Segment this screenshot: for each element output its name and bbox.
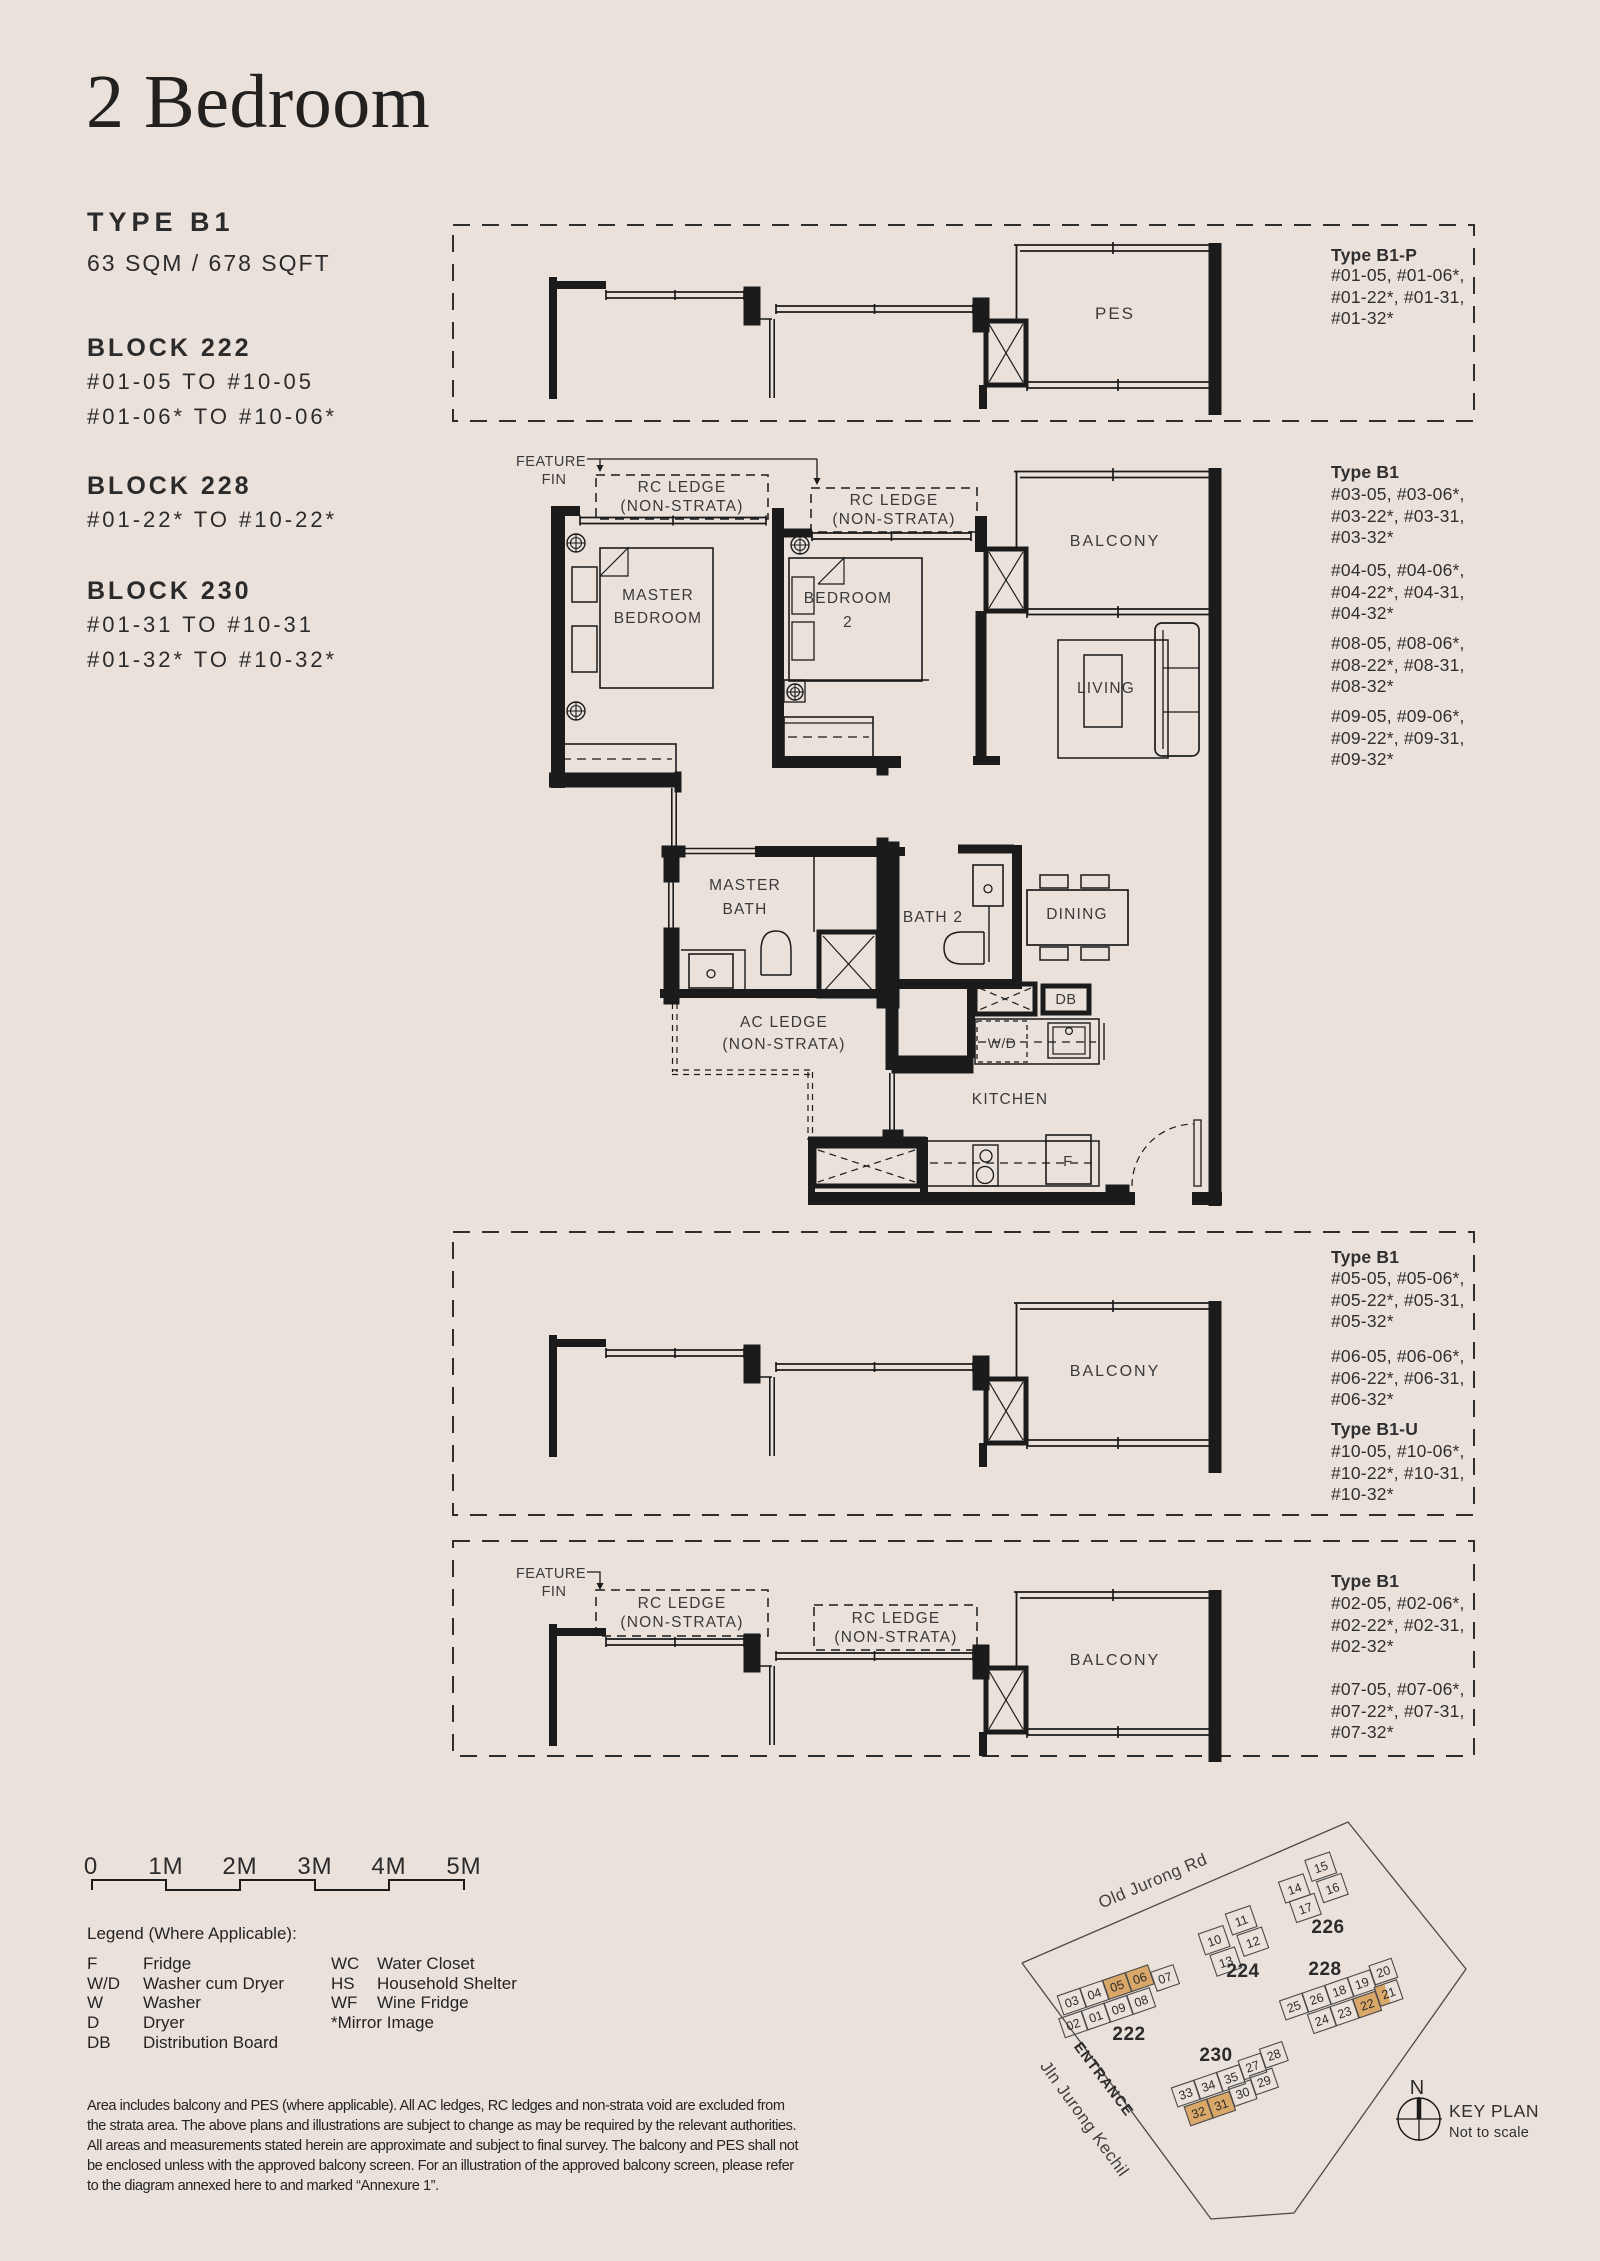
svg-text:BEDROOM: BEDROOM (804, 590, 893, 607)
svg-text:11: 11 (1233, 1912, 1250, 1929)
svg-text:(NON-STRATA): (NON-STRATA) (620, 1614, 743, 1631)
svg-text:228: 228 (1308, 1959, 1341, 1980)
svg-text:MASTER: MASTER (709, 877, 781, 894)
svg-text:19: 19 (1353, 1975, 1371, 1993)
svg-text:15: 15 (1312, 1859, 1330, 1877)
svg-text:08: 08 (1133, 1992, 1151, 2010)
svg-text:BATH 2: BATH 2 (903, 909, 963, 926)
svg-text:AC LEDGE: AC LEDGE (740, 1014, 828, 1031)
svg-text:W/D: W/D (988, 1035, 1017, 1051)
svg-text:1M: 1M (148, 1853, 183, 1880)
svg-text:21: 21 (1380, 1985, 1398, 2003)
svg-text:25: 25 (1285, 1998, 1303, 2016)
svg-text:3M: 3M (297, 1853, 332, 1880)
svg-text:BALCONY: BALCONY (1070, 1363, 1160, 1380)
svg-text:RC LEDGE: RC LEDGE (638, 1595, 727, 1612)
svg-text:20: 20 (1375, 1963, 1393, 1981)
svg-text:(NON-STRATA): (NON-STRATA) (834, 1629, 957, 1646)
svg-text:FIN: FIN (542, 472, 567, 488)
svg-text:RC LEDGE: RC LEDGE (638, 479, 727, 496)
svg-text:29: 29 (1255, 2073, 1273, 2091)
svg-text:09: 09 (1110, 2000, 1128, 2018)
svg-text:23: 23 (1336, 2004, 1354, 2022)
svg-text:03: 03 (1063, 1993, 1081, 2011)
svg-text:DB: DB (1055, 992, 1076, 1008)
svg-text:Old Jurong Rd: Old Jurong Rd (1096, 1850, 1210, 1913)
svg-text:N: N (1410, 2077, 1424, 2099)
svg-text:12: 12 (1244, 1934, 1262, 1952)
svg-text:17: 17 (1297, 1900, 1315, 1918)
svg-text:(NON-STRATA): (NON-STRATA) (722, 1036, 845, 1053)
svg-text:230: 230 (1199, 2045, 1232, 2066)
svg-text:07: 07 (1156, 1969, 1174, 1987)
svg-text:10: 10 (1206, 1932, 1224, 1950)
svg-text:LIVING: LIVING (1077, 680, 1135, 697)
svg-text:KEY PLAN: KEY PLAN (1449, 2101, 1539, 2121)
svg-text:224: 224 (1226, 1961, 1259, 1982)
svg-text:FIN: FIN (542, 1584, 567, 1600)
svg-text:DINING: DINING (1046, 906, 1107, 923)
svg-text:FEATURE: FEATURE (516, 1566, 586, 1582)
svg-text:5M: 5M (446, 1853, 481, 1880)
svg-text:RC LEDGE: RC LEDGE (852, 1610, 941, 1627)
svg-text:28: 28 (1265, 2046, 1283, 2064)
svg-text:4M: 4M (371, 1853, 406, 1880)
svg-text:BALCONY: BALCONY (1070, 533, 1160, 550)
svg-text:BEDROOM: BEDROOM (614, 610, 703, 627)
svg-text:30: 30 (1234, 2085, 1252, 2103)
svg-text:Not to scale: Not to scale (1449, 2125, 1529, 2141)
svg-text:24: 24 (1313, 2012, 1331, 2030)
svg-text:02: 02 (1064, 2016, 1082, 2034)
svg-text:(NON-STRATA): (NON-STRATA) (832, 511, 955, 528)
svg-text:222: 222 (1112, 2024, 1145, 2045)
svg-text:04: 04 (1086, 1985, 1104, 2003)
svg-text:2M: 2M (222, 1853, 257, 1880)
svg-text:26: 26 (1308, 1990, 1326, 2008)
svg-text:226: 226 (1311, 1917, 1344, 1938)
svg-text:BALCONY: BALCONY (1070, 1652, 1160, 1669)
svg-text:(NON-STRATA): (NON-STRATA) (620, 498, 743, 515)
svg-text:18: 18 (1331, 1982, 1349, 2000)
svg-text:MASTER: MASTER (622, 587, 694, 604)
svg-text:14: 14 (1286, 1880, 1304, 1898)
svg-text:KITCHEN: KITCHEN (972, 1091, 1048, 1108)
svg-text:01: 01 (1087, 2008, 1105, 2026)
svg-text:0: 0 (84, 1853, 98, 1880)
svg-text:16: 16 (1324, 1880, 1342, 1898)
svg-text:Jln Jurong Kechil: Jln Jurong Kechil (1036, 2057, 1132, 2180)
svg-text:2: 2 (843, 614, 853, 631)
svg-text:BATH: BATH (723, 901, 768, 918)
svg-text:F: F (1063, 1153, 1073, 1170)
svg-text:RC LEDGE: RC LEDGE (850, 492, 939, 509)
svg-text:PES: PES (1095, 304, 1135, 323)
svg-text:FEATURE: FEATURE (516, 454, 586, 470)
svg-text:33: 33 (1177, 2085, 1195, 2103)
svg-text:34: 34 (1200, 2077, 1218, 2095)
